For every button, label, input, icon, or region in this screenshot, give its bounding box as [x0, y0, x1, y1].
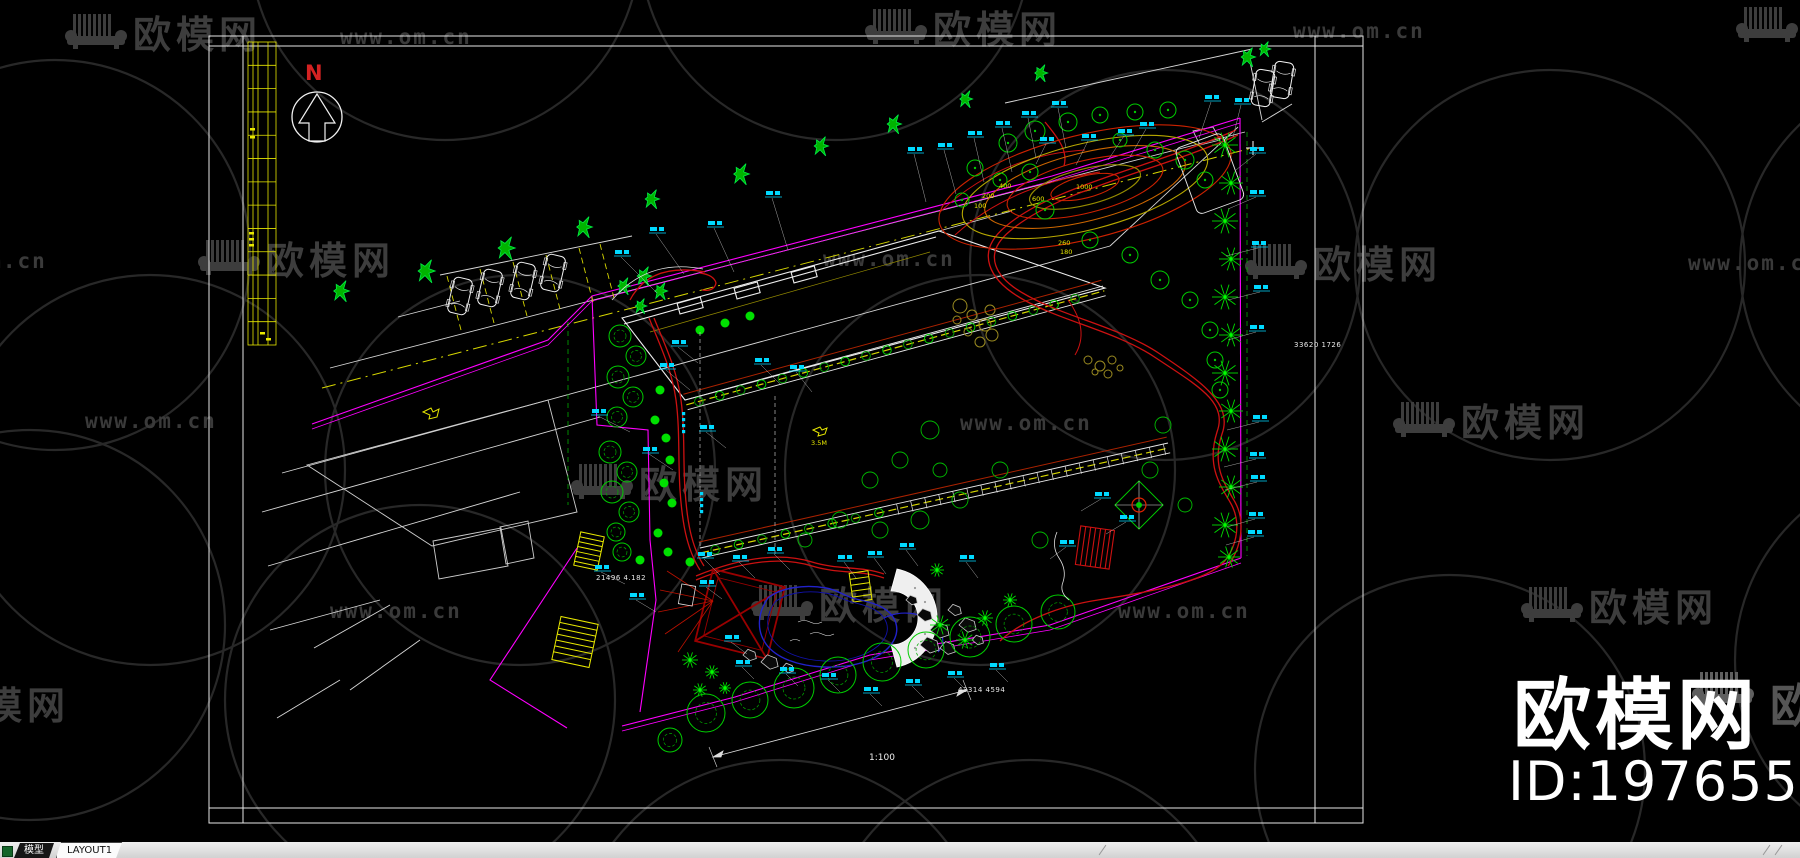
tree-burst-core: [1229, 409, 1232, 412]
label-text-mark: [1259, 190, 1264, 194]
shrub-dot: [662, 434, 671, 443]
tree-burst-core: [1229, 333, 1232, 336]
watermark-circle: [570, 760, 990, 842]
shrub-dot: [656, 386, 665, 395]
tab-layout1-label: LAYOUT1: [67, 845, 112, 856]
pergola-slat: [897, 504, 899, 515]
band-line: [683, 280, 1101, 394]
tree-core: [1134, 111, 1136, 113]
tree-crown-inner: [783, 677, 805, 699]
tree-palm: [734, 164, 750, 185]
car-rear: [1273, 87, 1287, 91]
legend-mark: [266, 338, 271, 341]
parking-divider: [579, 248, 593, 302]
rock-olive: [986, 329, 998, 341]
tree-crown-inner: [872, 652, 893, 673]
dimension-text: 43314 4594: [958, 686, 1005, 694]
tree-palm: [645, 190, 659, 209]
flow-arrow-icon: [423, 408, 439, 419]
shrub-dot: [721, 319, 730, 328]
tree-core: [1034, 130, 1036, 132]
label-text-mark: [745, 660, 750, 664]
label-text-mark: [900, 543, 907, 547]
label-text-mark: [652, 447, 657, 451]
label-text-mark: [969, 555, 974, 559]
label-text-mark: [1060, 540, 1067, 544]
car-symbol: [538, 253, 569, 293]
label-text-mark: [595, 565, 602, 569]
label-text-mark: [873, 687, 878, 691]
watermark-url: www.om.cn: [1688, 251, 1800, 275]
existing-buildings: [307, 127, 1220, 579]
tree-core: [1184, 159, 1186, 161]
label-vertical-mark: [682, 424, 685, 427]
tree-crown-inner: [611, 527, 621, 537]
building-outline: [433, 528, 508, 579]
tree: [933, 463, 947, 477]
label-text-mark: [775, 191, 780, 195]
brand-logo-text: 欧模网: [1513, 671, 1759, 761]
watermark-circle: [225, 505, 615, 842]
label-text-mark: [1259, 325, 1264, 329]
band-line: [702, 453, 1170, 558]
diamond-planter: [1115, 481, 1163, 529]
label-text-mark: [777, 547, 782, 551]
watermark-url: www.om.cn: [85, 409, 217, 433]
tree-crown-inner: [696, 703, 717, 724]
contour-label: 1000: [1076, 183, 1093, 191]
label-text-mark: [1244, 98, 1249, 102]
label-vertical-mark: [682, 412, 685, 415]
cad-viewport[interactable]: www.om.cnwww.om.cnwww.om.cnwww.om.cnwww.…: [0, 0, 1800, 842]
tree-palm: [577, 217, 593, 238]
label-text-mark: [592, 409, 599, 413]
label-text-mark: [868, 551, 875, 555]
hedge-shrub: [841, 357, 850, 366]
north-arrow: N: [292, 61, 342, 142]
dimension-text: 21496 4.182: [596, 574, 646, 582]
tree: [1178, 498, 1192, 512]
tree: [992, 462, 1008, 478]
watermark-brand: 欧模网: [1461, 401, 1590, 445]
tree-palm: [498, 237, 515, 260]
sofa-icon: [1245, 244, 1307, 279]
tab-layout1[interactable]: LAYOUT1: [56, 842, 123, 858]
brand-overlay: 欧 欧模网 ID:1976557: [1508, 671, 1800, 813]
label-text-mark: [1257, 530, 1262, 534]
label-text-mark: [742, 555, 747, 559]
label-leader: [828, 680, 840, 692]
tree-palm: [1035, 65, 1048, 82]
tree-crown-inner: [617, 547, 627, 557]
tab-model[interactable]: 模型: [14, 843, 54, 858]
label-leader: [906, 550, 918, 566]
watermark-brand: 欧模网: [266, 239, 395, 283]
label-text-mark: [1263, 285, 1268, 289]
sofa-icon: [1393, 402, 1455, 437]
tree-burst-core: [1223, 295, 1226, 298]
label-text-mark: [660, 363, 667, 367]
label-text-mark: [643, 447, 650, 451]
site-plan-drawing: www.om.cnwww.om.cnwww.om.cnwww.om.cnwww.…: [0, 0, 1800, 842]
label-leader: [912, 686, 924, 698]
tree-crown: [732, 682, 768, 718]
rock-olive: [1084, 356, 1092, 364]
pergola-slat: [1051, 469, 1053, 480]
tree-burst-core: [1229, 257, 1232, 260]
label-text-mark: [948, 671, 955, 675]
label-text-mark: [1250, 147, 1257, 151]
label-leader: [870, 694, 882, 706]
label-text-mark: [1259, 452, 1264, 456]
label-text-mark: [630, 593, 637, 597]
road-line: [282, 246, 1110, 473]
label-leader: [1227, 422, 1259, 430]
label-leader: [1028, 118, 1036, 158]
watermark-url: www.om.cn: [1293, 19, 1425, 43]
label-text-mark: [822, 673, 829, 677]
shrub-dot: [666, 456, 675, 465]
tree-palm: [1241, 48, 1255, 67]
label-text-mark: [1049, 137, 1054, 141]
legend-mark: [249, 238, 254, 241]
label-text-mark: [1061, 101, 1066, 105]
label-text-mark: [909, 543, 914, 547]
rock-olive: [1108, 356, 1116, 364]
label-vertical-mark: [682, 430, 685, 433]
label-text-mark: [1120, 515, 1127, 519]
tree-crown: [609, 325, 631, 347]
hedge-shrub: [715, 391, 724, 400]
rock-olive: [1117, 365, 1123, 371]
label-text-mark: [947, 143, 952, 147]
label-text-mark: [908, 147, 915, 151]
label-leader: [844, 562, 856, 578]
legend-table: [248, 42, 276, 345]
hedge-pergola-bands: [683, 280, 1170, 558]
tree-burst-core: [1227, 555, 1230, 558]
legend-mark: [260, 332, 265, 335]
label-vertical-mark: [682, 418, 685, 421]
label-text-mark: [698, 552, 705, 556]
label-text-mark: [1091, 134, 1096, 138]
tree-crown-inner: [624, 507, 635, 518]
label-vertical-mark: [700, 498, 703, 501]
watermark-url: www.om.cn: [0, 249, 47, 273]
shrub-dot: [686, 558, 695, 567]
pergola-slat: [1107, 457, 1109, 468]
flow-arrow-icon: [813, 427, 827, 436]
tree-crown-inner: [740, 690, 760, 710]
label-vertical-mark: [700, 492, 703, 495]
car-rear: [544, 279, 558, 284]
tree-palm: [655, 283, 668, 300]
label-text-mark: [780, 667, 787, 671]
label-text-mark: [650, 227, 657, 231]
watermark-url: www.om.cn: [960, 411, 1092, 435]
tree-core: [1209, 329, 1211, 331]
label-text-mark: [639, 593, 644, 597]
tree-burst-core: [1223, 371, 1226, 374]
hedge-shrub: [924, 334, 933, 343]
watermark-brand: 欧模网: [639, 463, 768, 507]
label-leader: [636, 600, 656, 612]
band-line: [699, 437, 1167, 542]
car-symbol: [475, 268, 506, 308]
label-leader: [772, 198, 788, 250]
label-text-mark: [707, 552, 712, 556]
tree-crown-inner: [604, 446, 616, 458]
tree-core: [1219, 389, 1221, 391]
tree-core: [974, 167, 976, 169]
tree: [862, 472, 878, 488]
hedge-shrub: [820, 363, 829, 372]
label-vertical-mark: [700, 510, 703, 513]
legend-mark: [250, 128, 255, 131]
watermark-url: www.om.cn: [330, 599, 462, 623]
label-text-mark: [1129, 515, 1134, 519]
label-text-mark: [725, 635, 732, 639]
label-text-mark: [1118, 129, 1125, 133]
label-text-mark: [1104, 492, 1109, 496]
tree-crown: [658, 728, 682, 752]
label-text-mark: [1251, 475, 1258, 479]
label-text-mark: [960, 555, 967, 559]
label-text-mark: [1248, 530, 1255, 534]
label-leader: [966, 562, 978, 578]
label-text-mark: [615, 250, 622, 254]
tree-burst-core: [1223, 523, 1226, 526]
watermark-brand: 欧模网: [933, 8, 1062, 52]
label-text-mark: [790, 365, 797, 369]
sofa-icon: [1736, 7, 1798, 42]
sofa-icon: [865, 9, 927, 44]
label-text-mark: [768, 547, 775, 551]
label-leader: [996, 670, 1008, 682]
tree-crown-inner: [622, 467, 633, 478]
tree-core: [1167, 109, 1169, 111]
label-text-mark: [1260, 475, 1265, 479]
hedge-shrub: [736, 386, 745, 395]
label-text-mark: [906, 679, 913, 683]
parking: [445, 60, 1297, 330]
road-line: [277, 680, 340, 718]
label-text-mark: [700, 580, 707, 584]
tree: [872, 522, 888, 538]
label-text-mark: [1252, 241, 1259, 245]
label-text-mark: [968, 131, 975, 135]
label-text-mark: [1253, 415, 1260, 419]
label-text-mark: [977, 131, 982, 135]
label-text-mark: [1127, 129, 1132, 133]
pergola-slat: [911, 501, 913, 512]
tree: [911, 511, 929, 529]
label-text-mark: [601, 409, 606, 413]
rock-olive: [1092, 369, 1098, 375]
rock-olive: [1104, 370, 1112, 378]
label-text-mark: [957, 671, 962, 675]
tree-crown-inner: [631, 351, 642, 362]
contour-label: 260: [1058, 239, 1070, 247]
label-text-mark: [847, 555, 852, 559]
road-line: [398, 301, 460, 317]
label-text-mark: [736, 660, 743, 664]
tree: [1155, 417, 1171, 433]
legend-mark: [250, 136, 255, 139]
label-text-mark: [1249, 512, 1256, 516]
label-text-mark: [1205, 95, 1212, 99]
tree-burst-core: [935, 568, 938, 571]
tree-burst-core: [698, 688, 701, 691]
tree-crown: [599, 441, 621, 463]
legend-mark: [249, 244, 254, 247]
tree-burst-core: [710, 670, 713, 673]
shrub-dot: [660, 479, 669, 488]
label-text-mark: [1005, 121, 1010, 125]
label-text-mark: [915, 679, 920, 683]
tree-crown: [626, 346, 646, 366]
divider: [1099, 845, 1107, 855]
tree-crown: [623, 387, 643, 407]
tree-core: [1099, 114, 1101, 116]
car-windshield: [1257, 79, 1271, 83]
divider: [1763, 845, 1771, 855]
label-text-mark: [604, 565, 609, 569]
label-leader: [706, 587, 722, 599]
shrub-dot: [636, 556, 645, 565]
vegetation: [334, 42, 1271, 753]
tree-core: [1129, 254, 1131, 256]
label-leader: [1050, 547, 1066, 559]
tree-palm: [418, 260, 435, 283]
road-line: [939, 211, 1012, 231]
label-text-mark: [917, 147, 922, 151]
label-text-mark: [1022, 111, 1029, 115]
label-leader: [1228, 292, 1260, 300]
contour-label: 180: [1060, 248, 1072, 256]
shrub-dot: [651, 416, 660, 425]
label-text-mark: [733, 555, 740, 559]
tree-palm: [960, 91, 973, 108]
tree-burst-core: [1229, 181, 1232, 184]
watermark-circle: [0, 430, 225, 820]
shrub-dot: [746, 312, 755, 321]
tree-core: [1204, 179, 1206, 181]
tree-core: [961, 199, 963, 201]
contour-label: 3.5M: [811, 439, 827, 447]
label-text-mark: [708, 221, 715, 225]
tree-crown: [607, 407, 627, 427]
label-text-mark: [1069, 540, 1074, 544]
label-leader: [1236, 154, 1256, 170]
tree-core: [1089, 239, 1091, 241]
tree-palm: [1259, 42, 1270, 57]
tree-core: [1154, 149, 1156, 151]
label-leader: [944, 150, 956, 194]
car-symbol: [508, 261, 539, 301]
label-text-mark: [1261, 241, 1266, 245]
tree-crown: [607, 366, 629, 388]
label-text-mark: [681, 340, 686, 344]
tree-burst-core: [983, 616, 986, 619]
tree: [1142, 462, 1158, 478]
car-body: [510, 261, 537, 300]
tree-crown: [619, 502, 639, 522]
tree-core: [1214, 359, 1216, 361]
sofa-icon: [1521, 587, 1583, 622]
contour-label: 200: [982, 192, 994, 200]
tree-crown: [1041, 595, 1075, 629]
pavilion: [658, 132, 1245, 659]
north-label: N: [305, 61, 323, 85]
tree-burst-core: [723, 686, 726, 689]
label-text-mark: [996, 121, 1003, 125]
tree-burst-core: [1223, 143, 1226, 146]
divider: [1775, 845, 1783, 855]
label-text-mark: [734, 635, 739, 639]
car-windshield: [1276, 71, 1290, 75]
parking-divider: [600, 244, 614, 298]
tree-burst-core: [1223, 447, 1226, 450]
pergola-slat: [1037, 472, 1039, 483]
tab-model-label: 模型: [24, 845, 44, 856]
tree-crown-inner: [628, 392, 639, 403]
label-text-mark: [1250, 325, 1257, 329]
watermark-url: www.om.cn: [1118, 599, 1250, 623]
label-text-mark: [1031, 111, 1036, 115]
label-text-mark: [799, 365, 804, 369]
brand-id-text: ID:1976557: [1508, 750, 1800, 813]
label-text-mark: [766, 191, 773, 195]
boundary-line: [490, 548, 577, 728]
shrub-dot: [654, 529, 663, 538]
watermark-circle: [820, 760, 1240, 842]
rock-stone: [948, 604, 961, 615]
building-outline: [500, 521, 534, 564]
contour-label: 600: [1032, 195, 1044, 203]
tree-crown-inner: [614, 330, 626, 342]
tree: [892, 452, 908, 468]
road-line: [268, 492, 520, 566]
label-text-mark: [1082, 134, 1089, 138]
label-text-mark: [1259, 147, 1264, 151]
label-text-mark: [1214, 95, 1219, 99]
band-line: [685, 286, 1103, 400]
label-text-mark: [1254, 285, 1261, 289]
label-vertical-mark: [700, 504, 703, 507]
legend-frame: [248, 42, 276, 345]
tree: [921, 421, 939, 439]
tree-crown-inner: [612, 412, 623, 423]
label-text-mark: [1250, 190, 1257, 194]
tree-burst-core: [1223, 219, 1226, 222]
label-leader: [706, 432, 726, 448]
tree-crown: [613, 543, 631, 561]
building-outline: [307, 400, 577, 546]
tree-crown: [607, 523, 625, 541]
label-leader: [656, 234, 684, 274]
label-text-mark: [789, 667, 794, 671]
legend-mark: [249, 232, 254, 235]
shrub-dot: [668, 499, 677, 508]
label-text-mark: [1235, 98, 1242, 102]
tree-core: [999, 179, 1001, 181]
label-text-mark: [1149, 122, 1154, 126]
sofa-icon: [65, 14, 127, 49]
label-text-mark: [864, 687, 871, 691]
pergola-slat: [981, 485, 983, 496]
brand-echo: 欧: [1770, 679, 1800, 733]
